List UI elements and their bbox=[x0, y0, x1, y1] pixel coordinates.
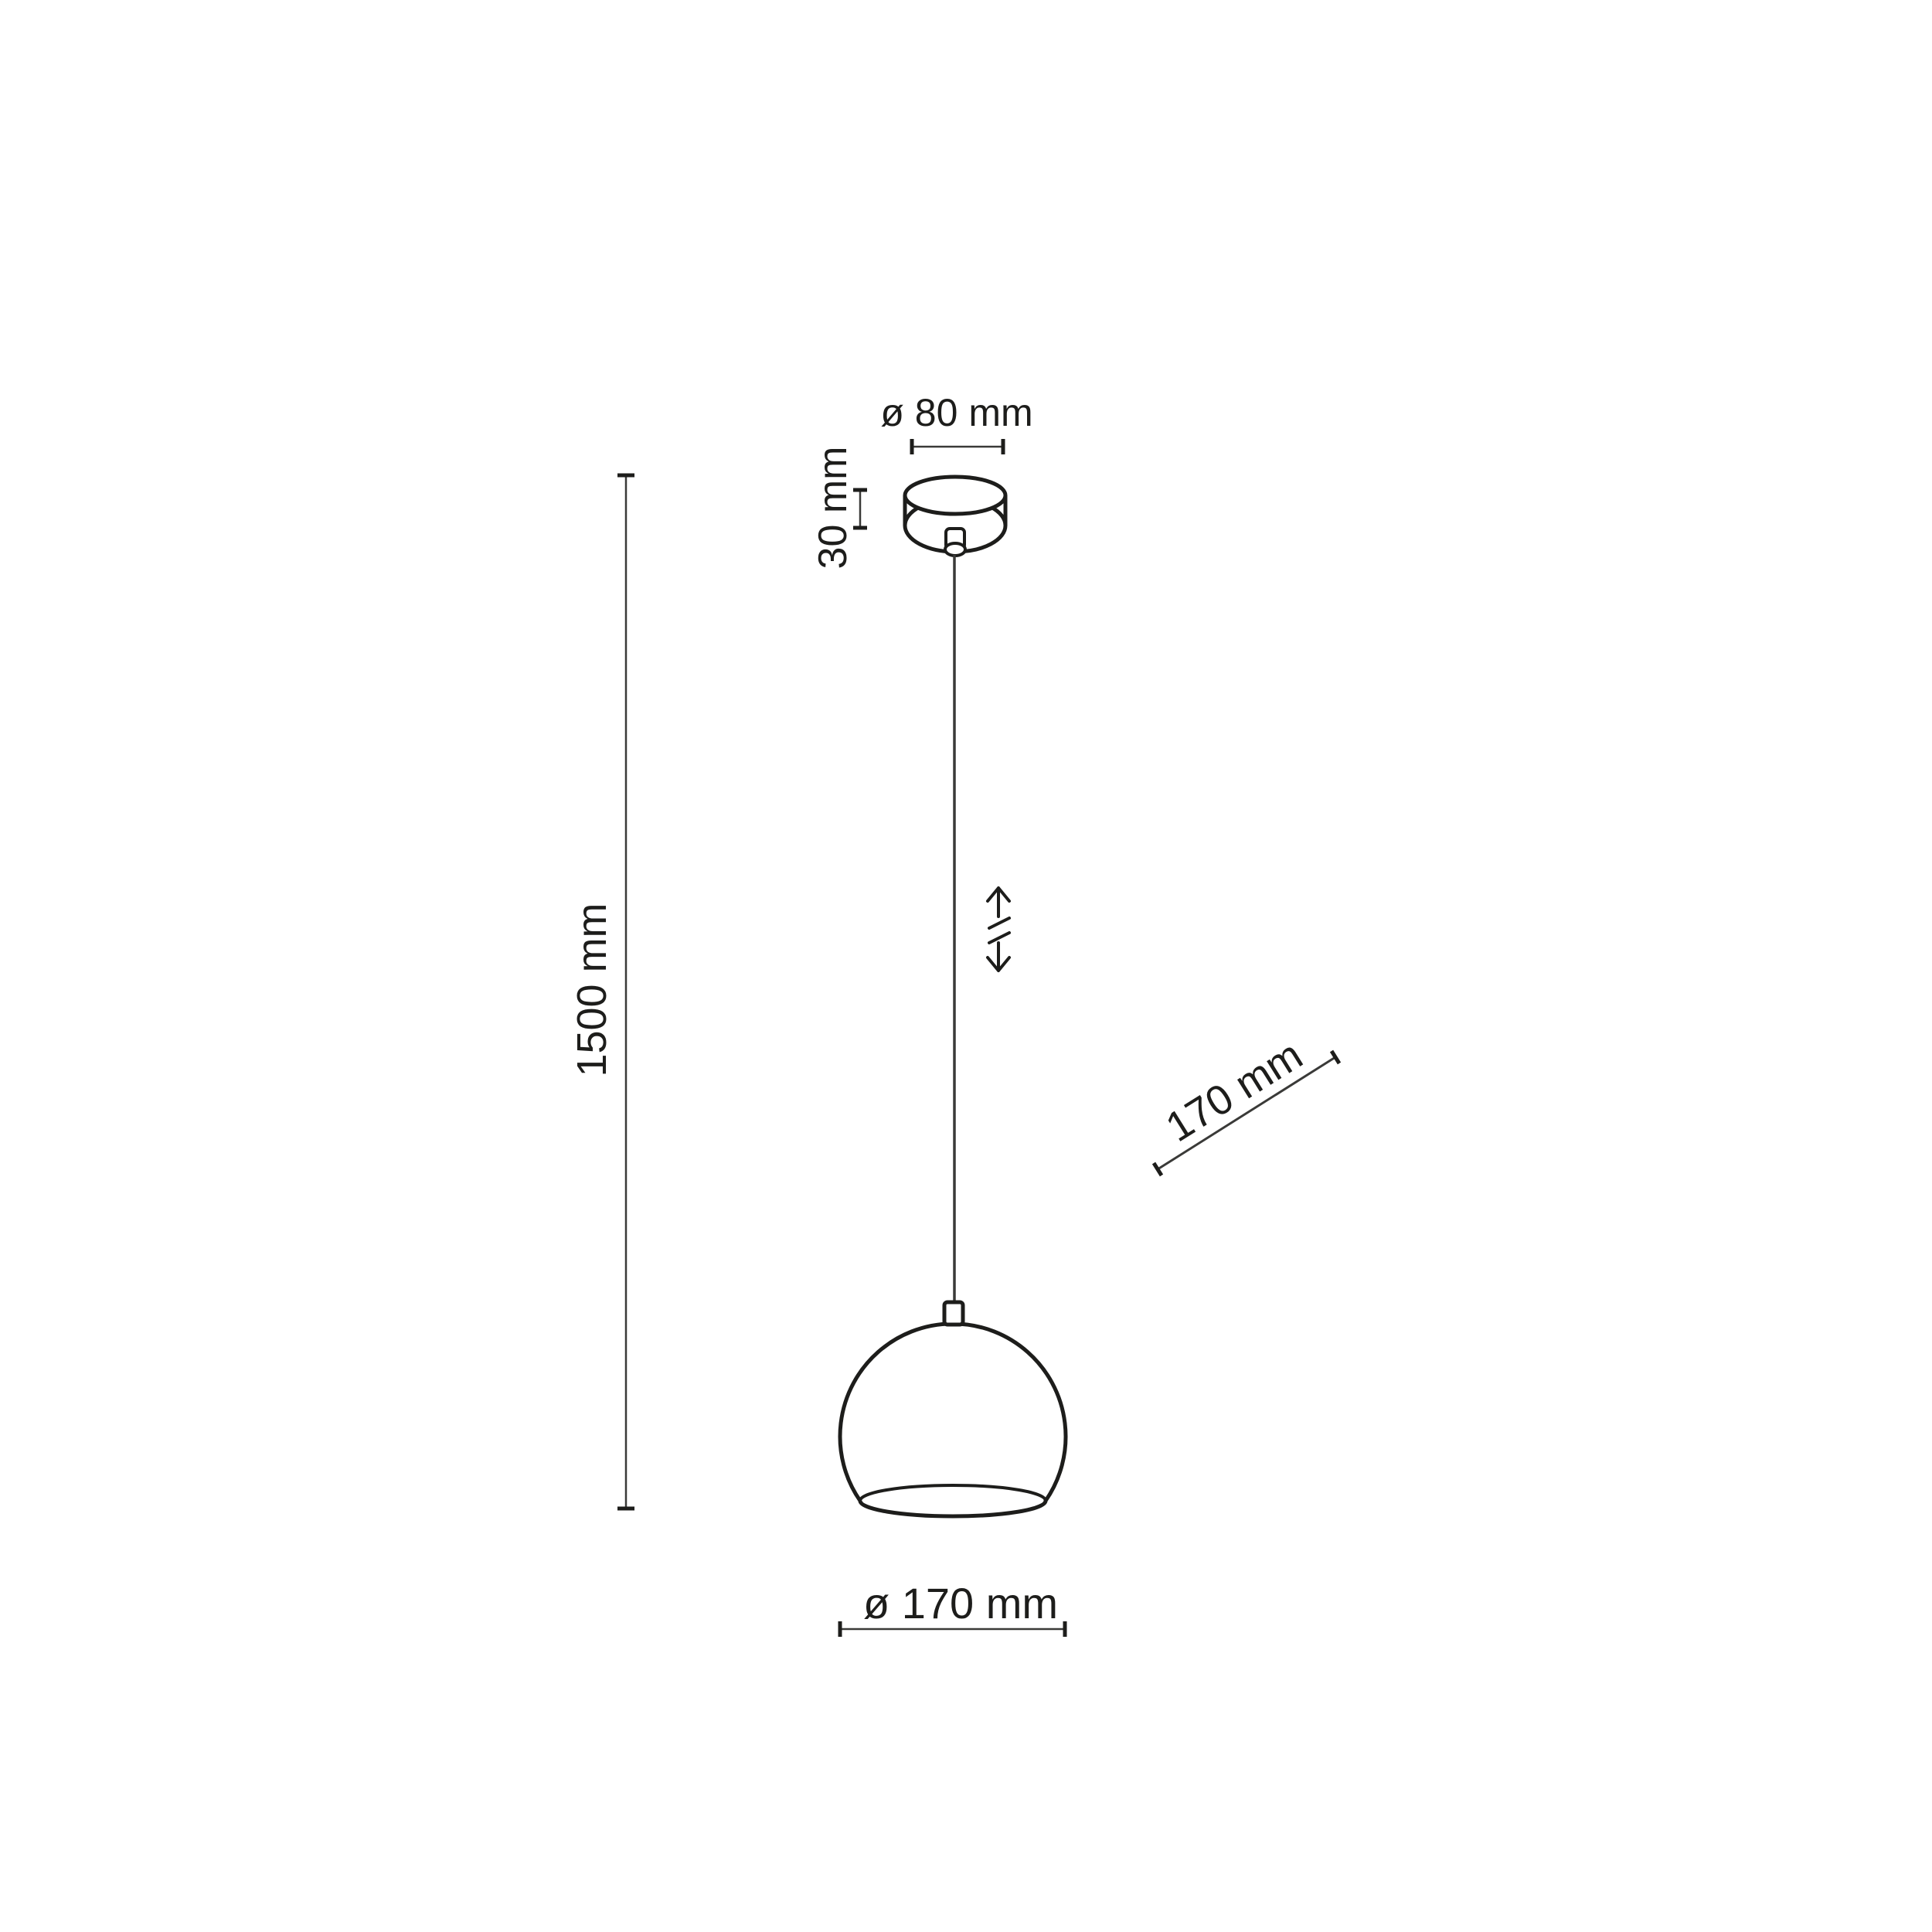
label-shade-diameter: ø 170 mm bbox=[863, 1582, 1058, 1625]
diagram-drawing bbox=[0, 0, 1932, 1932]
height-adjustable-icon bbox=[988, 888, 1009, 971]
dimension-line-canopy-diameter bbox=[912, 439, 1003, 454]
label-suspension-length: 1500 mm bbox=[571, 903, 613, 1077]
shade-opening-rim bbox=[860, 1485, 1046, 1516]
pendant-lamp-diagram: ø 80 mm 30 mm 1500 mm 170 mm ø 170 mm bbox=[0, 0, 1932, 1932]
shade-drawing bbox=[840, 1302, 1066, 1516]
dimension-line-suspension-length bbox=[617, 475, 634, 1509]
label-canopy-height: 30 mm bbox=[813, 447, 853, 570]
shade-socket bbox=[944, 1302, 963, 1325]
canopy-drawing bbox=[905, 477, 1005, 556]
label-canopy-diameter: ø 80 mm bbox=[880, 393, 1032, 432]
